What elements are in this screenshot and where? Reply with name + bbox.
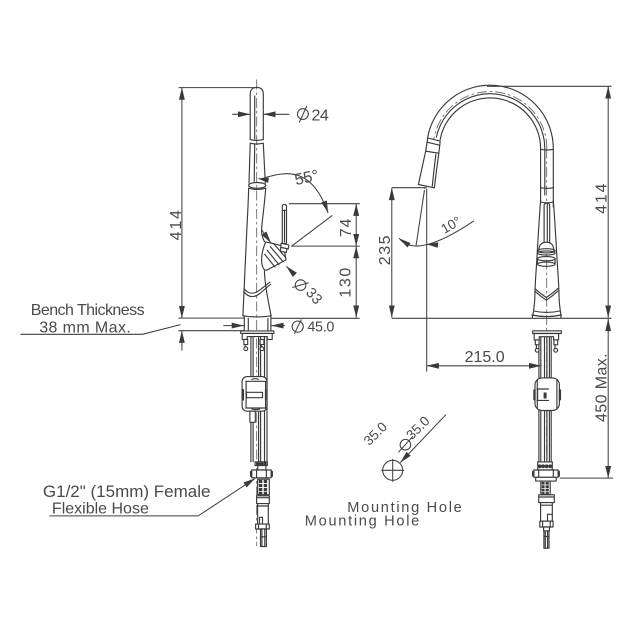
- svg-text:450 Max.: 450 Max.: [594, 353, 611, 422]
- svg-text:G1/2" (15mm) Female: G1/2" (15mm) Female: [43, 482, 211, 501]
- svg-text:45.0: 45.0: [307, 320, 334, 336]
- svg-text:414: 414: [594, 182, 611, 214]
- svg-text:235: 235: [377, 234, 394, 265]
- svg-text:414: 414: [168, 208, 185, 240]
- svg-text:215.0: 215.0: [465, 349, 505, 366]
- svg-text:Flexible Hose: Flexible Hose: [52, 501, 149, 518]
- svg-text:130: 130: [338, 266, 355, 298]
- svg-text:24: 24: [312, 108, 329, 125]
- svg-text:74: 74: [338, 218, 355, 238]
- svg-text:Mounting Hole: Mounting Hole: [305, 513, 421, 529]
- svg-text:Bench Thickness: Bench Thickness: [31, 302, 145, 319]
